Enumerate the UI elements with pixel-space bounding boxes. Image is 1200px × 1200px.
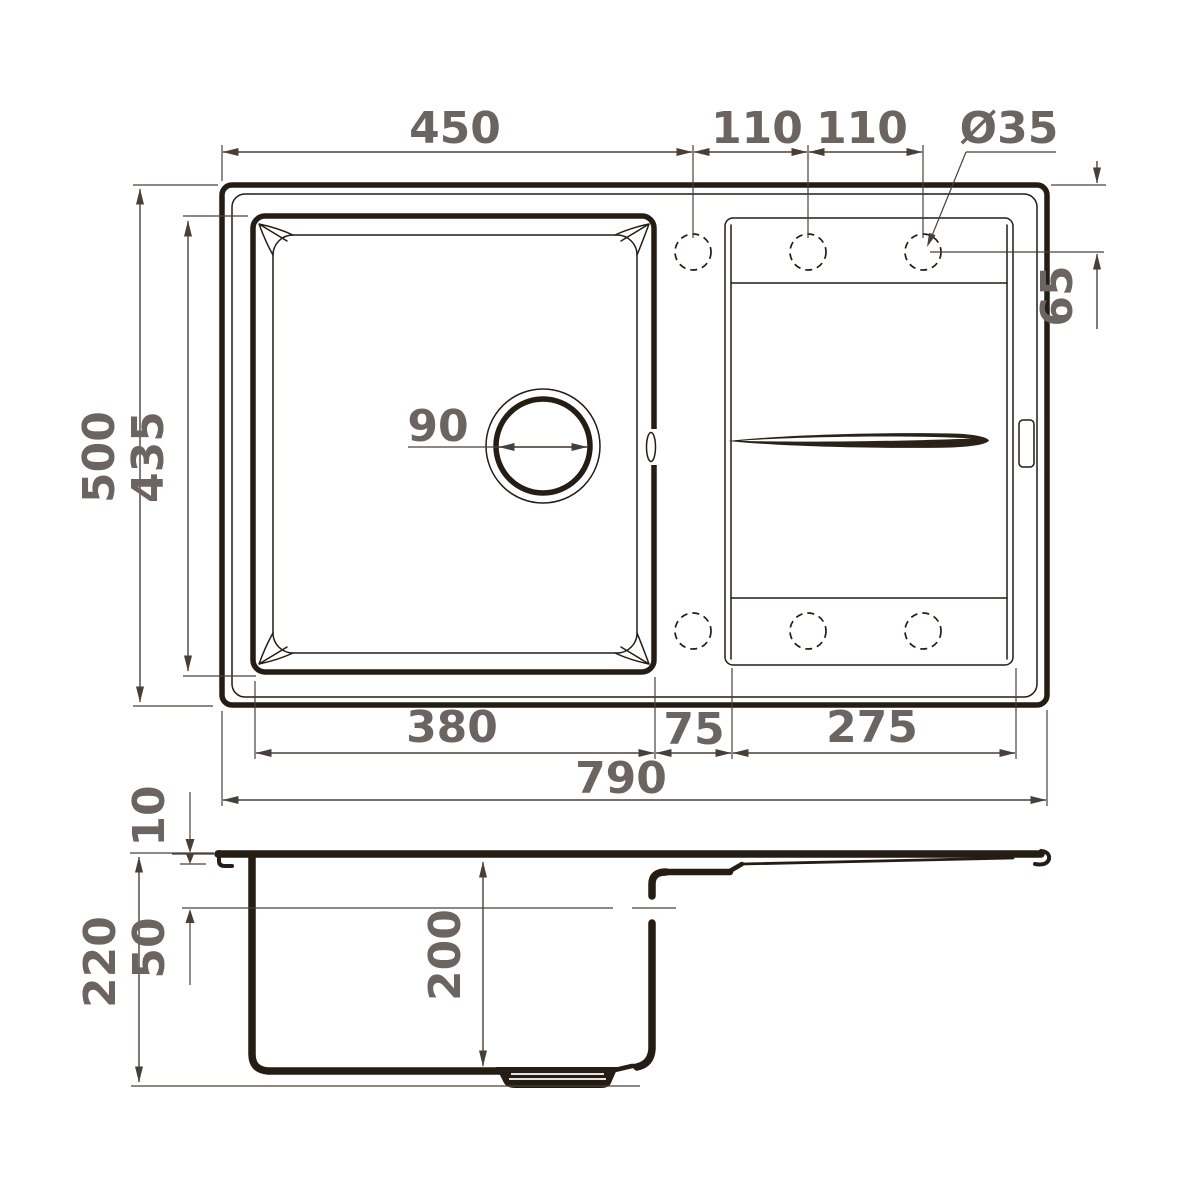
dim-label-220: 220: [75, 916, 126, 1008]
bowl-right-wall-lower: [637, 923, 652, 1067]
tap-hole: [905, 613, 941, 649]
technical-drawing: 450 110 110 Ø35 90 500 435 65 380 75 275…: [0, 0, 1200, 1200]
dim-label-65: 65: [1032, 265, 1083, 326]
dim-label-380: 380: [406, 702, 498, 753]
side-view: [182, 851, 1049, 1088]
dim-label-110a: 110: [711, 103, 803, 154]
dim-label-500: 500: [74, 411, 125, 503]
dim-label-dia35: Ø35: [960, 103, 1059, 154]
tap-hole: [790, 234, 826, 270]
drain-hole: [496, 399, 590, 493]
tap-hole: [790, 613, 826, 649]
dim-label-50: 50: [124, 917, 175, 978]
dim-label-110b: 110: [816, 103, 908, 154]
dim-label-435: 435: [123, 411, 174, 503]
drainboard: [725, 218, 1034, 665]
dim-label-790: 790: [575, 753, 667, 804]
logo-plate: [1019, 420, 1034, 467]
dim-label-10: 10: [124, 785, 175, 846]
side-view-dimensions: 10 50 220 200: [75, 785, 640, 1086]
dim-label-90: 90: [407, 401, 468, 452]
dim-label-75: 75: [663, 704, 724, 755]
drain-hub: [496, 1067, 618, 1088]
tap-hole: [675, 234, 711, 270]
tap-hole: [675, 613, 711, 649]
drain-outer-circle: [486, 389, 600, 503]
bowl-right-wall-upper: [652, 872, 666, 896]
dim-label-275: 275: [826, 702, 918, 753]
drainboard-slope: [742, 858, 1013, 864]
dim-label-450: 450: [409, 103, 501, 154]
top-view: [222, 185, 1047, 705]
dim-label-200: 200: [420, 909, 471, 1001]
drainboard-step: [730, 864, 742, 871]
